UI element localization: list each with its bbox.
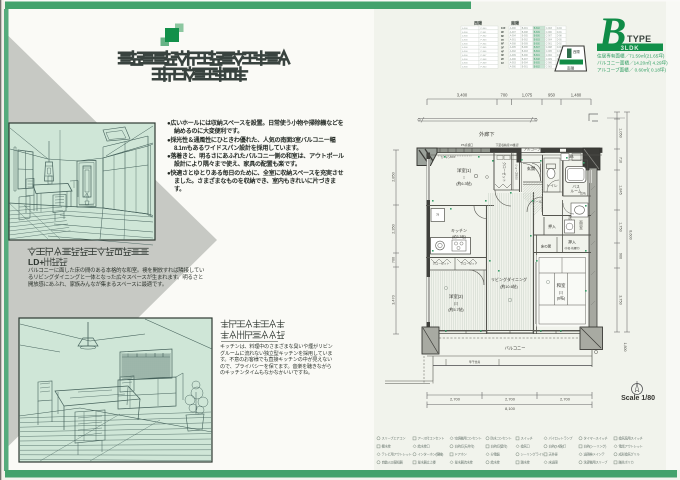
svg-text:押入: 押入 (568, 240, 576, 245)
svg-text:C-908: C-908 (546, 47, 553, 49)
svg-text:B-901: B-901 (522, 28, 529, 30)
svg-text:A-900: A-900 (510, 27, 517, 30)
svg-text:2,850: 2,850 (392, 172, 396, 182)
svg-text:B-607: B-607 (534, 47, 541, 49)
svg-text:A-902: A-902 (510, 50, 517, 53)
svg-text:アルコーブ: アルコーブ (524, 147, 541, 152)
svg-text:700: 700 (501, 93, 509, 98)
svg-text:P-906: P-906 (481, 51, 488, 53)
svg-text:B-906: B-906 (522, 47, 529, 49)
svg-text:P-900: P-900 (481, 28, 488, 30)
svg-text:900: 900 (619, 253, 623, 259)
svg-text:C-903: C-903 (546, 67, 553, 69)
svg-text:(□): (□) (454, 302, 458, 306)
svg-text:□: □ (463, 176, 465, 180)
svg-text:7F: 7F (501, 38, 504, 42)
svg-text:A-901: A-901 (510, 39, 517, 42)
svg-text:床の間: 床の間 (541, 244, 552, 249)
svg-text:700: 700 (392, 257, 396, 263)
svg-text:(約5.7帖): (約5.7帖) (448, 307, 464, 312)
svg-text:A-903: A-903 (510, 62, 517, 65)
svg-text:3,750: 3,750 (619, 295, 623, 305)
svg-text:(6帖): (6帖) (557, 296, 566, 301)
svg-text:和室: 和室 (557, 282, 566, 289)
svg-text:電話アウトレット: 電話アウトレット (619, 444, 643, 449)
svg-text:A-907: A-907 (510, 31, 517, 34)
svg-text:換気口: 換気口 (521, 444, 530, 449)
svg-text:ホール: ホール (532, 199, 542, 204)
svg-text:自動火災報知器: 自動火災報知器 (382, 460, 404, 465)
svg-text:押入: 押入 (548, 224, 556, 229)
svg-text:(約3.3帖): (約3.3帖) (452, 234, 466, 239)
svg-text:シーリングライト: シーリングライト (521, 452, 545, 457)
svg-text:白熱(シーリング): 白熱(シーリング) (584, 444, 607, 449)
svg-text:C-903: C-903 (546, 28, 553, 30)
svg-text:P-909: P-909 (481, 63, 488, 65)
svg-text:アルコーブ面積／ 0.60㎡( 0.18坪): アルコーブ面積／ 0.60㎡( 0.18坪) (597, 67, 666, 74)
svg-text:3,470: 3,470 (392, 295, 396, 305)
svg-text:分電盤: 分電盤 (491, 452, 501, 457)
svg-text:1,050: 1,050 (619, 128, 623, 138)
svg-text:P-900: P-900 (481, 67, 488, 69)
svg-text:量水器流水栓: 量水器流水栓 (455, 460, 474, 465)
svg-text:シューズBOX: シューズBOX (515, 164, 519, 180)
svg-text:(約10.6帖): (約10.6帖) (500, 284, 518, 289)
svg-text:(□): (□) (559, 291, 563, 295)
svg-text:室: 室 (579, 225, 583, 230)
svg-text:Scale 1/80: Scale 1/80 (621, 395, 655, 402)
svg-text:成形換気グリル: 成形換気グリル (619, 452, 641, 457)
svg-text:洋室(1): 洋室(1) (457, 167, 472, 174)
svg-text:テレビ用アウトレット: テレビ用アウトレット (382, 452, 412, 457)
svg-text:0-900: 0-900 (462, 67, 468, 69)
svg-text:白熱灯(壁付): 白熱灯(壁付) (491, 444, 508, 449)
svg-text:710: 710 (619, 157, 623, 163)
svg-text:A-905: A-905 (510, 46, 517, 49)
svg-text:D-94: D-94 (557, 28, 563, 30)
svg-text:冷: 冷 (436, 212, 439, 217)
svg-text:B-903: B-903 (522, 51, 529, 53)
svg-text:C-905: C-905 (546, 51, 553, 53)
svg-text:リビングダイニング: リビングダイニング (491, 276, 527, 282)
svg-text:換気扇用スイッチ: 換気扇用スイッチ (619, 436, 643, 441)
svg-text:空調機用コンセント: 空調機用コンセント (455, 436, 482, 441)
svg-text:P-903: P-903 (481, 40, 488, 42)
svg-text:A-900: A-900 (510, 66, 517, 69)
svg-text:アース付コンセント: アース付コンセント (418, 436, 445, 441)
svg-text:B-602: B-602 (534, 28, 541, 30)
svg-text:0-900: 0-900 (462, 63, 468, 65)
svg-text:3F: 3F (501, 53, 504, 57)
svg-text:給水栓: 給水栓 (491, 460, 501, 465)
svg-text:西陽: 西陽 (573, 49, 580, 54)
svg-text:防水コンセント: 防水コンセント (491, 436, 512, 441)
svg-text:8F: 8F (501, 34, 504, 38)
svg-text:床遠陽: 床遠陽 (549, 460, 559, 465)
svg-text:竿干金具: 竿干金具 (469, 360, 480, 364)
svg-text:白熱(3.4路)灯: 白熱(3.4路)灯 (549, 444, 567, 449)
svg-text:0-900: 0-900 (462, 28, 468, 30)
svg-text:南陽: 南陽 (511, 20, 519, 26)
svg-text:給水栓口: 給水栓口 (418, 444, 430, 449)
svg-text:カーテンBOX: カーテンBOX (441, 155, 456, 159)
svg-text:白熱灯(天井付): 白熱灯(天井付) (455, 444, 475, 449)
svg-text:パイロットランプ: パイロットランプ (549, 436, 574, 441)
svg-text:B-604: B-604 (534, 51, 541, 53)
svg-text:A-909: A-909 (510, 54, 517, 57)
svg-text:天井畳: 天井畳 (549, 452, 559, 457)
svg-text:棚水栓: 棚水栓 (382, 444, 392, 449)
svg-text:C-906: C-906 (546, 63, 553, 65)
svg-text:B-901: B-901 (522, 67, 529, 69)
svg-text:6F: 6F (501, 42, 504, 46)
svg-text:タイマースイッチ: タイマースイッチ (584, 436, 608, 441)
svg-text:9F: 9F (501, 30, 504, 34)
svg-text:PS点検口: PS点検口 (461, 143, 473, 147)
svg-text:膳先ポリカ: 膳先ポリカ (619, 460, 634, 465)
svg-text:クローゼット: クローゼット (461, 262, 478, 266)
svg-text:3LDK: 3LDK (621, 46, 640, 52)
svg-text:4F: 4F (501, 49, 504, 53)
svg-text:バルコニー: バルコニー (505, 346, 526, 351)
svg-text:バス: バス (572, 184, 580, 189)
svg-text:8,600: 8,600 (629, 230, 633, 240)
svg-text:スイッチ: スイッチ (521, 436, 533, 441)
svg-text:0-900: 0-900 (462, 51, 468, 53)
svg-text:D-95: D-95 (557, 40, 563, 42)
svg-text:ドアホン: ドアホン (455, 452, 468, 457)
svg-text:雑水栓: 雑水栓 (521, 460, 531, 465)
svg-text:バルコニー面積／14.20㎡( 4.29坪): バルコニー面積／14.20㎡( 4.29坪) (597, 60, 668, 67)
svg-text:2,700: 2,700 (450, 397, 461, 402)
svg-text:玄関: 玄関 (527, 165, 535, 172)
svg-text:1,800: 1,800 (623, 343, 627, 352)
svg-text:10F: 10F (501, 26, 506, 30)
svg-text:2F: 2F (501, 57, 504, 61)
svg-text:B-902: B-902 (522, 40, 529, 42)
svg-text:1,845: 1,845 (619, 185, 623, 195)
svg-text:(約6.3帖): (約6.3帖) (456, 181, 472, 186)
svg-text:インターホン(親機): インターホン(親機) (418, 452, 444, 457)
svg-text:クローゼット: クローゼット (433, 262, 450, 266)
svg-text:B-603: B-603 (534, 40, 541, 42)
svg-text:B-602: B-602 (534, 67, 541, 69)
svg-text:2,700: 2,700 (560, 397, 571, 402)
svg-text:洋室(2): 洋室(2) (449, 293, 464, 300)
svg-text:西陽: 西陽 (474, 20, 482, 26)
svg-text:(1坪): (1坪) (580, 192, 586, 196)
svg-text:1,750: 1,750 (619, 222, 623, 232)
svg-text:キッチン: キッチン (451, 228, 467, 233)
svg-text:面: 面 (579, 220, 583, 225)
svg-text:量水器立上楼: 量水器立上楼 (418, 460, 437, 465)
svg-text:B-605: B-605 (534, 63, 541, 65)
svg-text:TYPE: TYPE (627, 34, 651, 44)
svg-text:洗濯機用スリーブ: 洗濯機用スリーブ (584, 460, 609, 465)
svg-text:(中段･枕棚付): (中段･枕棚付) (565, 246, 580, 250)
svg-text:A-906: A-906 (510, 58, 517, 61)
svg-text:スリーブエアコン: スリーブエアコン (382, 436, 407, 441)
svg-text:住居専有面積／71.59㎡(21.65坪): 住居専有面積／71.59㎡(21.65坪) (597, 53, 665, 60)
svg-text:5F: 5F (501, 46, 504, 50)
svg-text:外廊下: 外廊下 (479, 130, 495, 138)
svg-text:2,350: 2,350 (392, 224, 396, 234)
svg-text:クローゼット: クローゼット (502, 162, 507, 182)
svg-text:MB: MB (568, 155, 574, 159)
svg-text:下足収納室×6確認: 下足収納室×6確認 (496, 143, 519, 147)
svg-text:8,100: 8,100 (505, 406, 516, 411)
svg-text:2,700: 2,700 (505, 397, 516, 402)
svg-text:1,075: 1,075 (522, 93, 533, 98)
svg-text:950: 950 (548, 93, 556, 98)
svg-text:LD+: LD+ (28, 257, 44, 267)
svg-text:C-904: C-904 (546, 40, 553, 42)
svg-text:P-905: P-905 (481, 47, 488, 49)
svg-text:洗: 洗 (568, 215, 572, 220)
svg-text:A-908: A-908 (510, 42, 517, 45)
svg-text:0-900: 0-900 (462, 40, 468, 42)
svg-text:A-904: A-904 (510, 35, 517, 38)
svg-text:遠隔検メインテ: 遠隔検メインテ (584, 452, 606, 457)
svg-text:3,400: 3,400 (457, 93, 468, 98)
svg-text:南陽: 南陽 (567, 66, 575, 71)
svg-text:B-904: B-904 (522, 63, 529, 65)
svg-text:1,480: 1,480 (571, 93, 582, 98)
svg-text:1F: 1F (501, 61, 504, 65)
svg-text:0-900: 0-900 (462, 47, 468, 49)
